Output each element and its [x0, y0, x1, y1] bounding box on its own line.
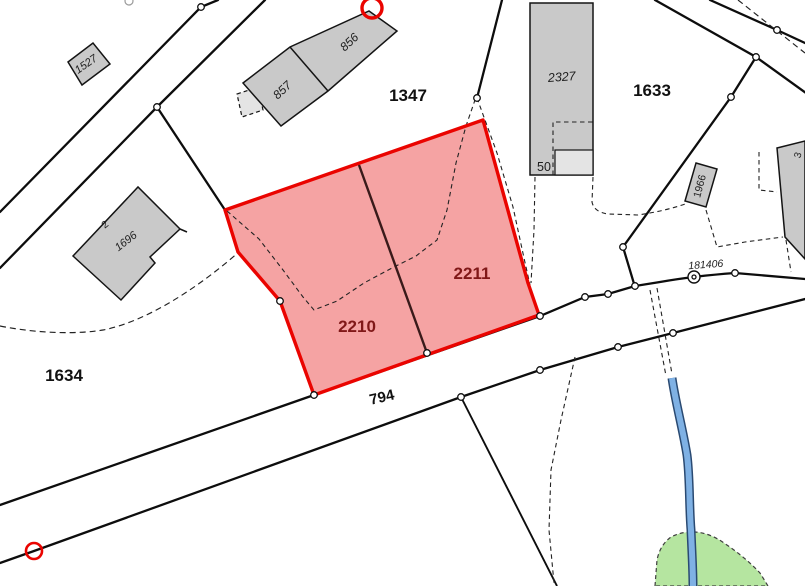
building-label-50: 50 — [537, 160, 551, 174]
road-label-181406: 181406 — [688, 258, 724, 272]
cadastral-map-canvas[interactable]: 1347 1633 1634 2210 2211 794 181406 1527… — [0, 0, 805, 586]
parcel-label-1347: 1347 — [389, 86, 427, 105]
parcel-label-2210: 2210 — [338, 317, 376, 336]
parcel-label-1633: 1633 — [633, 81, 671, 100]
survey-marker-center-icon — [692, 275, 696, 279]
parcel-label-2211: 2211 — [454, 264, 491, 283]
building-2327-annex — [555, 150, 593, 175]
building-2327 — [530, 3, 593, 175]
building-label-2327: 2327 — [546, 69, 577, 85]
parcel-label-1634: 1634 — [45, 366, 83, 385]
